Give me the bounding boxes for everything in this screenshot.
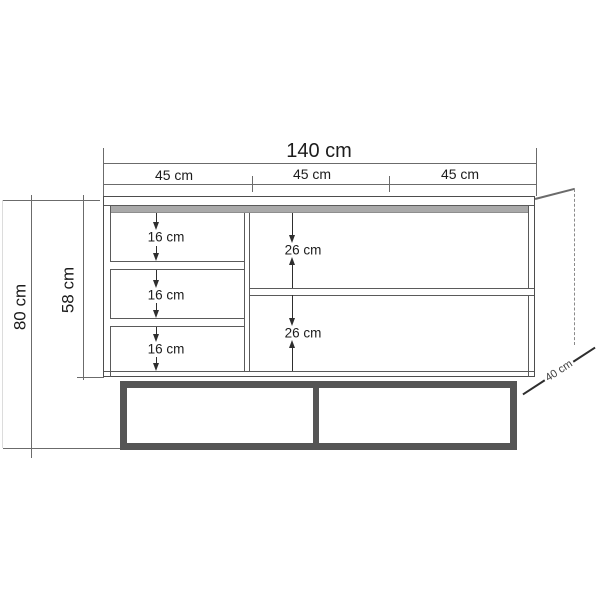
gap-26-label-2: 26 cm — [285, 326, 322, 340]
base-frame-divider — [313, 381, 319, 450]
arrow-up-icon — [289, 340, 295, 348]
height-extension-bottom-58 — [77, 377, 104, 378]
gap-16-label-3: 16 cm — [148, 342, 185, 356]
gap-16-label-2: 16 cm — [148, 288, 185, 302]
total-width-label: 140 cm — [286, 141, 352, 161]
total-height-dim-line — [31, 195, 32, 458]
body-height-dim-line — [83, 195, 84, 380]
left-wall-inner-line — [110, 205, 111, 377]
bottom-panel-inner-line — [104, 371, 534, 372]
section-tick-1 — [252, 176, 253, 192]
height-extension-bottom-80 — [3, 448, 120, 449]
depth-label: 40 cm — [542, 357, 576, 385]
gap-26-label-1: 26 cm — [285, 243, 322, 257]
section-width-label-2: 45 cm — [293, 167, 331, 181]
section-width-label-3: 45 cm — [441, 167, 479, 181]
section-tick-2 — [389, 176, 390, 192]
dim-extension-right-tick — [536, 148, 537, 196]
arrow-down-icon — [153, 363, 159, 371]
gap26-1-line-bottom — [292, 265, 293, 288]
outer-extension-line — [2, 200, 3, 448]
depth-line-segment — [522, 379, 545, 395]
body-height-label: 58 cm — [60, 267, 77, 313]
section-width-label-1: 45 cm — [155, 168, 193, 182]
arrow-down-icon — [153, 253, 159, 261]
top-depth-edge — [535, 188, 575, 200]
gap26-1-line-top — [292, 213, 293, 236]
section-width-dim-line — [103, 184, 537, 185]
cabinet-top-strip — [110, 206, 529, 213]
dim-extension-left-tick — [103, 148, 104, 196]
total-width-dim-line — [103, 163, 537, 164]
arrow-up-icon — [289, 257, 295, 265]
back-edge-dashed-line — [574, 189, 575, 345]
gap26-2-line-top — [292, 295, 293, 319]
shelf-left-2 — [110, 318, 244, 327]
gap-16-label-1: 16 cm — [148, 230, 185, 244]
arrow-down-icon — [153, 310, 159, 318]
gap26-2-line-bottom — [292, 348, 293, 371]
depth-line-segment — [573, 347, 596, 363]
total-height-label: 80 cm — [12, 284, 29, 330]
height-extension-top — [3, 200, 100, 201]
furniture-dimension-diagram: 140 cm 45 cm 45 cm 45 cm 80 cm 58 cm 16 … — [0, 0, 600, 600]
shelf-left-1 — [110, 261, 244, 270]
